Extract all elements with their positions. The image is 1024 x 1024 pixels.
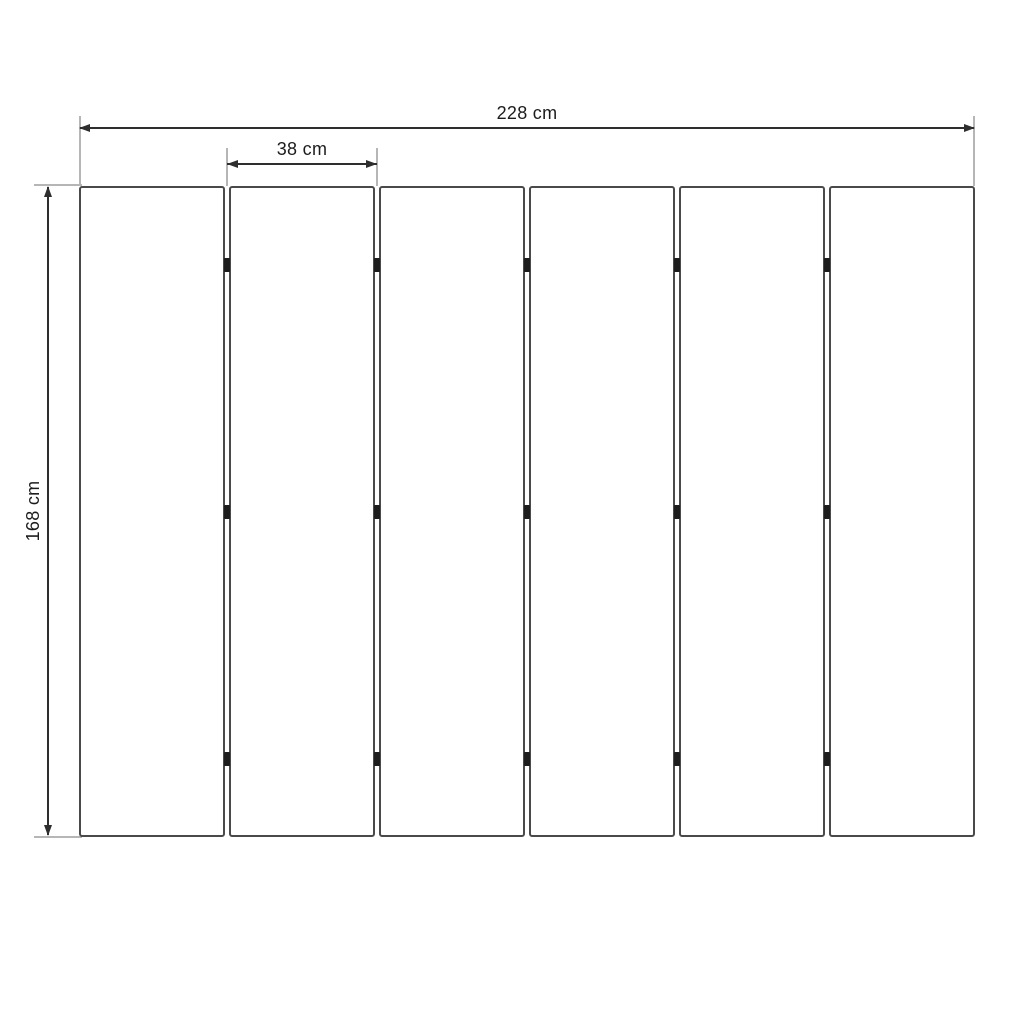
panel-2 <box>229 186 375 837</box>
dimension-line-panel-width <box>227 163 377 165</box>
panel-5 <box>679 186 825 837</box>
hinge-icon <box>374 258 380 272</box>
arrowhead-right-icon <box>366 160 377 168</box>
technical-drawing-canvas: 228 cm 38 cm 168 cm <box>0 0 1024 1024</box>
hinge-icon <box>674 258 680 272</box>
hinge-icon <box>674 505 680 519</box>
panel-4 <box>529 186 675 837</box>
hinge-icon <box>224 505 230 519</box>
hinge-icon <box>224 752 230 766</box>
extension-line-height-top <box>34 184 82 186</box>
dimension-line-height <box>47 187 49 835</box>
extension-line-height-bottom <box>34 836 82 838</box>
panel-1 <box>79 186 225 837</box>
hinge-icon <box>824 752 830 766</box>
panel-6 <box>829 186 975 837</box>
hinge-icon <box>524 752 530 766</box>
hinge-icon <box>824 505 830 519</box>
hinge-icon <box>824 258 830 272</box>
dimension-line-total-width <box>80 127 974 129</box>
arrowhead-left-icon <box>79 124 90 132</box>
arrowhead-left-icon <box>227 160 238 168</box>
hinge-icon <box>524 258 530 272</box>
panel-3 <box>379 186 525 837</box>
arrowhead-down-icon <box>44 825 52 836</box>
hinge-icon <box>374 752 380 766</box>
arrowhead-right-icon <box>964 124 975 132</box>
hinge-icon <box>374 505 380 519</box>
dimension-panel-width-label: 38 cm <box>227 139 377 159</box>
dimension-height-label: 168 cm <box>23 481 43 542</box>
hinge-icon <box>674 752 680 766</box>
arrowhead-up-icon <box>44 186 52 197</box>
dimension-total-width-label: 228 cm <box>80 103 974 123</box>
hinge-icon <box>224 258 230 272</box>
hinge-icon <box>524 505 530 519</box>
